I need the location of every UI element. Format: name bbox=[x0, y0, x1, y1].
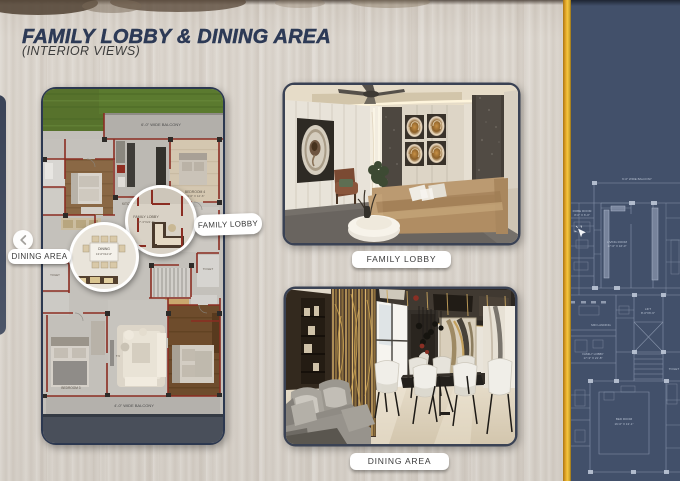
svg-text:6'-0" WIDE BALCONY: 6'-0" WIDE BALCONY bbox=[622, 177, 652, 181]
svg-text:TOILET: TOILET bbox=[203, 267, 214, 271]
svg-text:T.V: T.V bbox=[116, 354, 120, 358]
svg-text:17'-6" X 16'-0": 17'-6" X 16'-0" bbox=[608, 244, 627, 248]
svg-text:17'-3" X 21'-8": 17'-3" X 21'-8" bbox=[584, 356, 603, 360]
svg-text:BED ROOM: BED ROOM bbox=[616, 417, 633, 421]
svg-text:6'-0" WIDE BALCONY: 6'-0" WIDE BALCONY bbox=[141, 122, 181, 127]
svg-text:BEDROOM 3: BEDROOM 3 bbox=[61, 386, 80, 390]
svg-text:8'-0"X6'-6": 8'-0"X6'-6" bbox=[641, 311, 655, 315]
svg-text:13'-0"X12'-6": 13'-0"X12'-6" bbox=[96, 252, 112, 256]
svg-text:4'-0" WIDE BALCONY: 4'-0" WIDE BALCONY bbox=[114, 403, 154, 408]
svg-text:16'-0" X 13'-1": 16'-0" X 13'-1" bbox=[615, 422, 634, 426]
svg-text:8'-0" X 6'-0": 8'-0" X 6'-0" bbox=[574, 213, 590, 217]
svg-text:MID LANDING: MID LANDING bbox=[591, 323, 611, 327]
svg-text:TOILET: TOILET bbox=[669, 367, 680, 371]
svg-text:TOILET: TOILET bbox=[50, 273, 60, 277]
svg-text:DINING: DINING bbox=[98, 247, 110, 251]
svg-text:FAMILY LOBBY: FAMILY LOBBY bbox=[133, 215, 159, 219]
